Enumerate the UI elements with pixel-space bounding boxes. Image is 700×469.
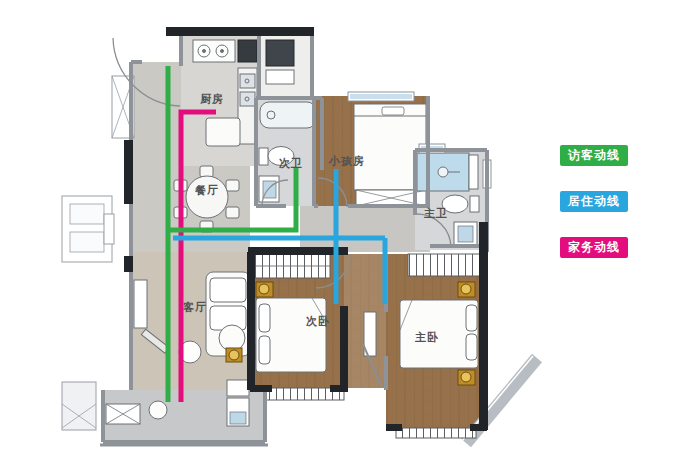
second-wardrobe <box>254 254 330 278</box>
room-label-master-bathroom: 主卫 <box>424 207 448 219</box>
room-label-guest-bathroom: 次卫 <box>279 157 303 169</box>
kitchen-island <box>206 118 240 146</box>
master-bedroom-window <box>396 428 476 438</box>
balcony-basin <box>149 401 167 419</box>
room-label-second-bedroom: 次卧 <box>306 315 330 327</box>
master-sink <box>454 222 477 246</box>
dining-table <box>186 176 228 218</box>
room-label-master-bedroom: 主卧 <box>415 331 439 343</box>
pantry-cabinet <box>266 70 294 84</box>
room-label-kitchen: 厨房 <box>199 93 224 105</box>
circulation-legend: 访客动线 居住动线 家务动线 <box>560 145 628 258</box>
master-wardrobe <box>408 254 487 276</box>
fridge <box>266 40 294 66</box>
legend-item-visitor: 访客动线 <box>560 145 628 166</box>
washing-machine <box>227 380 249 426</box>
kids-room-window <box>348 92 414 101</box>
second-bed <box>256 298 326 372</box>
room-label-dining-room: 餐厅 <box>194 184 219 196</box>
left-outdoor-platform <box>62 382 96 430</box>
kitchen-counter-dark <box>238 40 257 62</box>
room-label-living-room: 客厅 <box>182 301 207 313</box>
left-bay-window <box>62 196 114 262</box>
guest-bathtub <box>260 102 316 128</box>
balcony-ac-box <box>106 404 140 424</box>
master-bed <box>400 300 478 368</box>
floorplan-figure: 厨房餐厅次卫小孩房主卫客厅次卧主卧 访客动线 居住动线 家务动线 <box>0 0 700 469</box>
legend-item-housework: 家务动线 <box>560 237 628 258</box>
kitchen-stove <box>193 40 235 62</box>
tv-cabinet <box>134 280 147 328</box>
room-label-kids-room: 小孩房 <box>328 155 365 167</box>
sofa <box>206 272 250 356</box>
legend-item-living: 居住动线 <box>560 191 628 212</box>
gold-side-table <box>226 348 242 362</box>
